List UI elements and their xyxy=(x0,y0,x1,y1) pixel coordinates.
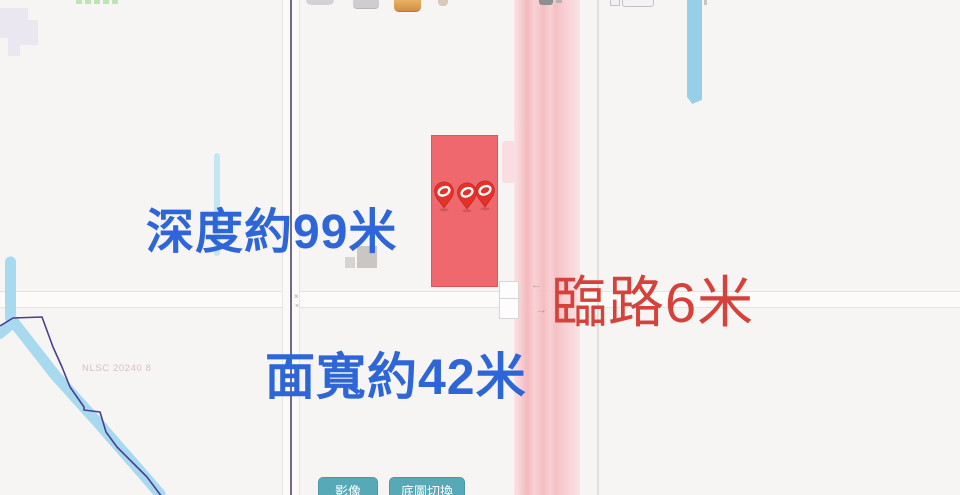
district-boundary-line xyxy=(0,317,162,495)
green-boundary-fragment xyxy=(76,0,118,4)
toolbar-icon-fragment xyxy=(610,0,620,6)
highway-shoulder xyxy=(502,141,515,183)
toolbar-icon-fragment xyxy=(539,0,553,5)
survey-mark-icon: × xyxy=(295,303,299,311)
toolbar-icon-fragment[interactable] xyxy=(353,0,379,9)
lane-arrow-right-icon: → xyxy=(536,305,547,316)
building-outline-box xyxy=(499,281,519,319)
building-outline-divider xyxy=(500,298,518,299)
toolbar-icon-fragment xyxy=(622,0,654,7)
annotation-width: 面寬約42米 xyxy=(265,337,527,409)
nlsc-watermark: NLSC 20240 8 xyxy=(82,363,152,374)
road-minor-line xyxy=(597,0,599,495)
lane-arrow-left-icon: ← xyxy=(531,280,542,291)
toolbar-icon-fragment[interactable] xyxy=(306,0,334,5)
road-blue-segment xyxy=(687,0,702,104)
canal-branch xyxy=(0,322,14,334)
imagery-button[interactable]: 影像 xyxy=(318,477,378,495)
annotation-frontage: 臨路6米 xyxy=(551,258,754,339)
toolbar-icon-fragment xyxy=(556,0,562,3)
highway-pink xyxy=(514,0,580,495)
building-footprint-lavender xyxy=(0,6,38,56)
basemap-switch-button[interactable]: 底圖切換 xyxy=(389,477,465,495)
map-viewport[interactable]: × × ← → NLSC 20240 8 深度約99米 臨路6米 面寬約42米 … xyxy=(0,0,960,495)
survey-mark-icon: × xyxy=(294,293,299,301)
toolbar-icon-fragment xyxy=(704,0,707,5)
toolbar-icon-fragment-active[interactable] xyxy=(394,0,421,12)
listing-pin-icon[interactable] xyxy=(456,182,478,213)
listing-pin-icon[interactable] xyxy=(433,181,455,212)
annotation-depth: 深度約99米 xyxy=(146,192,397,262)
toolbar-icon-fragment[interactable] xyxy=(438,0,448,6)
road-horizontal xyxy=(0,291,960,308)
